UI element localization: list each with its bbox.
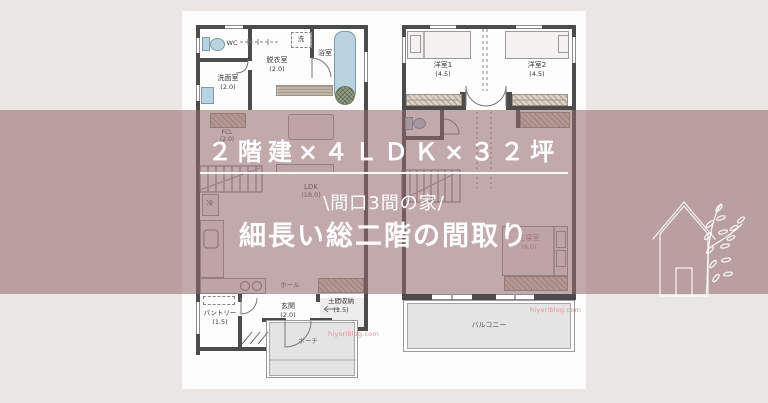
pillow xyxy=(558,35,569,53)
room-label-youshitsu1: 洋室1 xyxy=(434,62,452,70)
wall xyxy=(402,25,576,29)
closet xyxy=(406,94,462,106)
room-size-genkan: (2.0) xyxy=(280,312,295,319)
room-label-bath: 浴室 xyxy=(318,50,332,58)
room-label-wc: WC xyxy=(227,40,238,47)
banner-title-text: ２階建×４ＬＤＫ×３２坪 xyxy=(200,132,568,174)
room-size-doma: (1.5) xyxy=(333,307,348,314)
room-label-balcony: バルコニー xyxy=(472,322,507,330)
room-size-youshitsu2: (4.5) xyxy=(529,71,544,78)
window xyxy=(430,25,456,29)
label-washer: 洗 xyxy=(298,36,305,43)
room-label-doma: 土間収納 xyxy=(328,298,354,305)
watermark-floor2: hiyoriblog.com xyxy=(530,306,581,314)
window xyxy=(516,25,542,29)
room-label-youshitsu2: 洋室2 xyxy=(528,62,546,70)
house-branch-icon xyxy=(646,194,756,298)
room-label-genkan: 玄関 xyxy=(281,303,295,311)
floorplan-post-image: WC 洗面室 (2.0) 脱衣室 (2.0) 浴室 洗 FCL (2.0) LD… xyxy=(0,0,768,403)
title-banner: ２階建×４ＬＤＫ×３２坪 \間口3間の家/ 細長い総二階の間取り xyxy=(0,110,768,294)
pillow xyxy=(410,35,421,53)
banner-title: ２階建×４ＬＤＫ×３２坪 xyxy=(0,132,768,174)
watermark-floor1: hiyoriblog.com xyxy=(328,330,379,338)
room-size-pantry: (1.5) xyxy=(212,319,227,326)
closet xyxy=(512,94,568,106)
room-size-datsui: (2.0) xyxy=(269,66,284,73)
window xyxy=(572,37,576,63)
window xyxy=(402,37,406,63)
room-label-washroom: 洗面室 xyxy=(218,75,239,83)
room-label-datsui: 脱衣室 xyxy=(267,57,288,65)
room-size-youshitsu1: (4.5) xyxy=(435,71,450,78)
room-label-pantry: パントリー xyxy=(204,310,237,317)
room-label-porch: ポーチ xyxy=(298,338,318,345)
room-size-washroom: (2.0) xyxy=(220,84,235,91)
